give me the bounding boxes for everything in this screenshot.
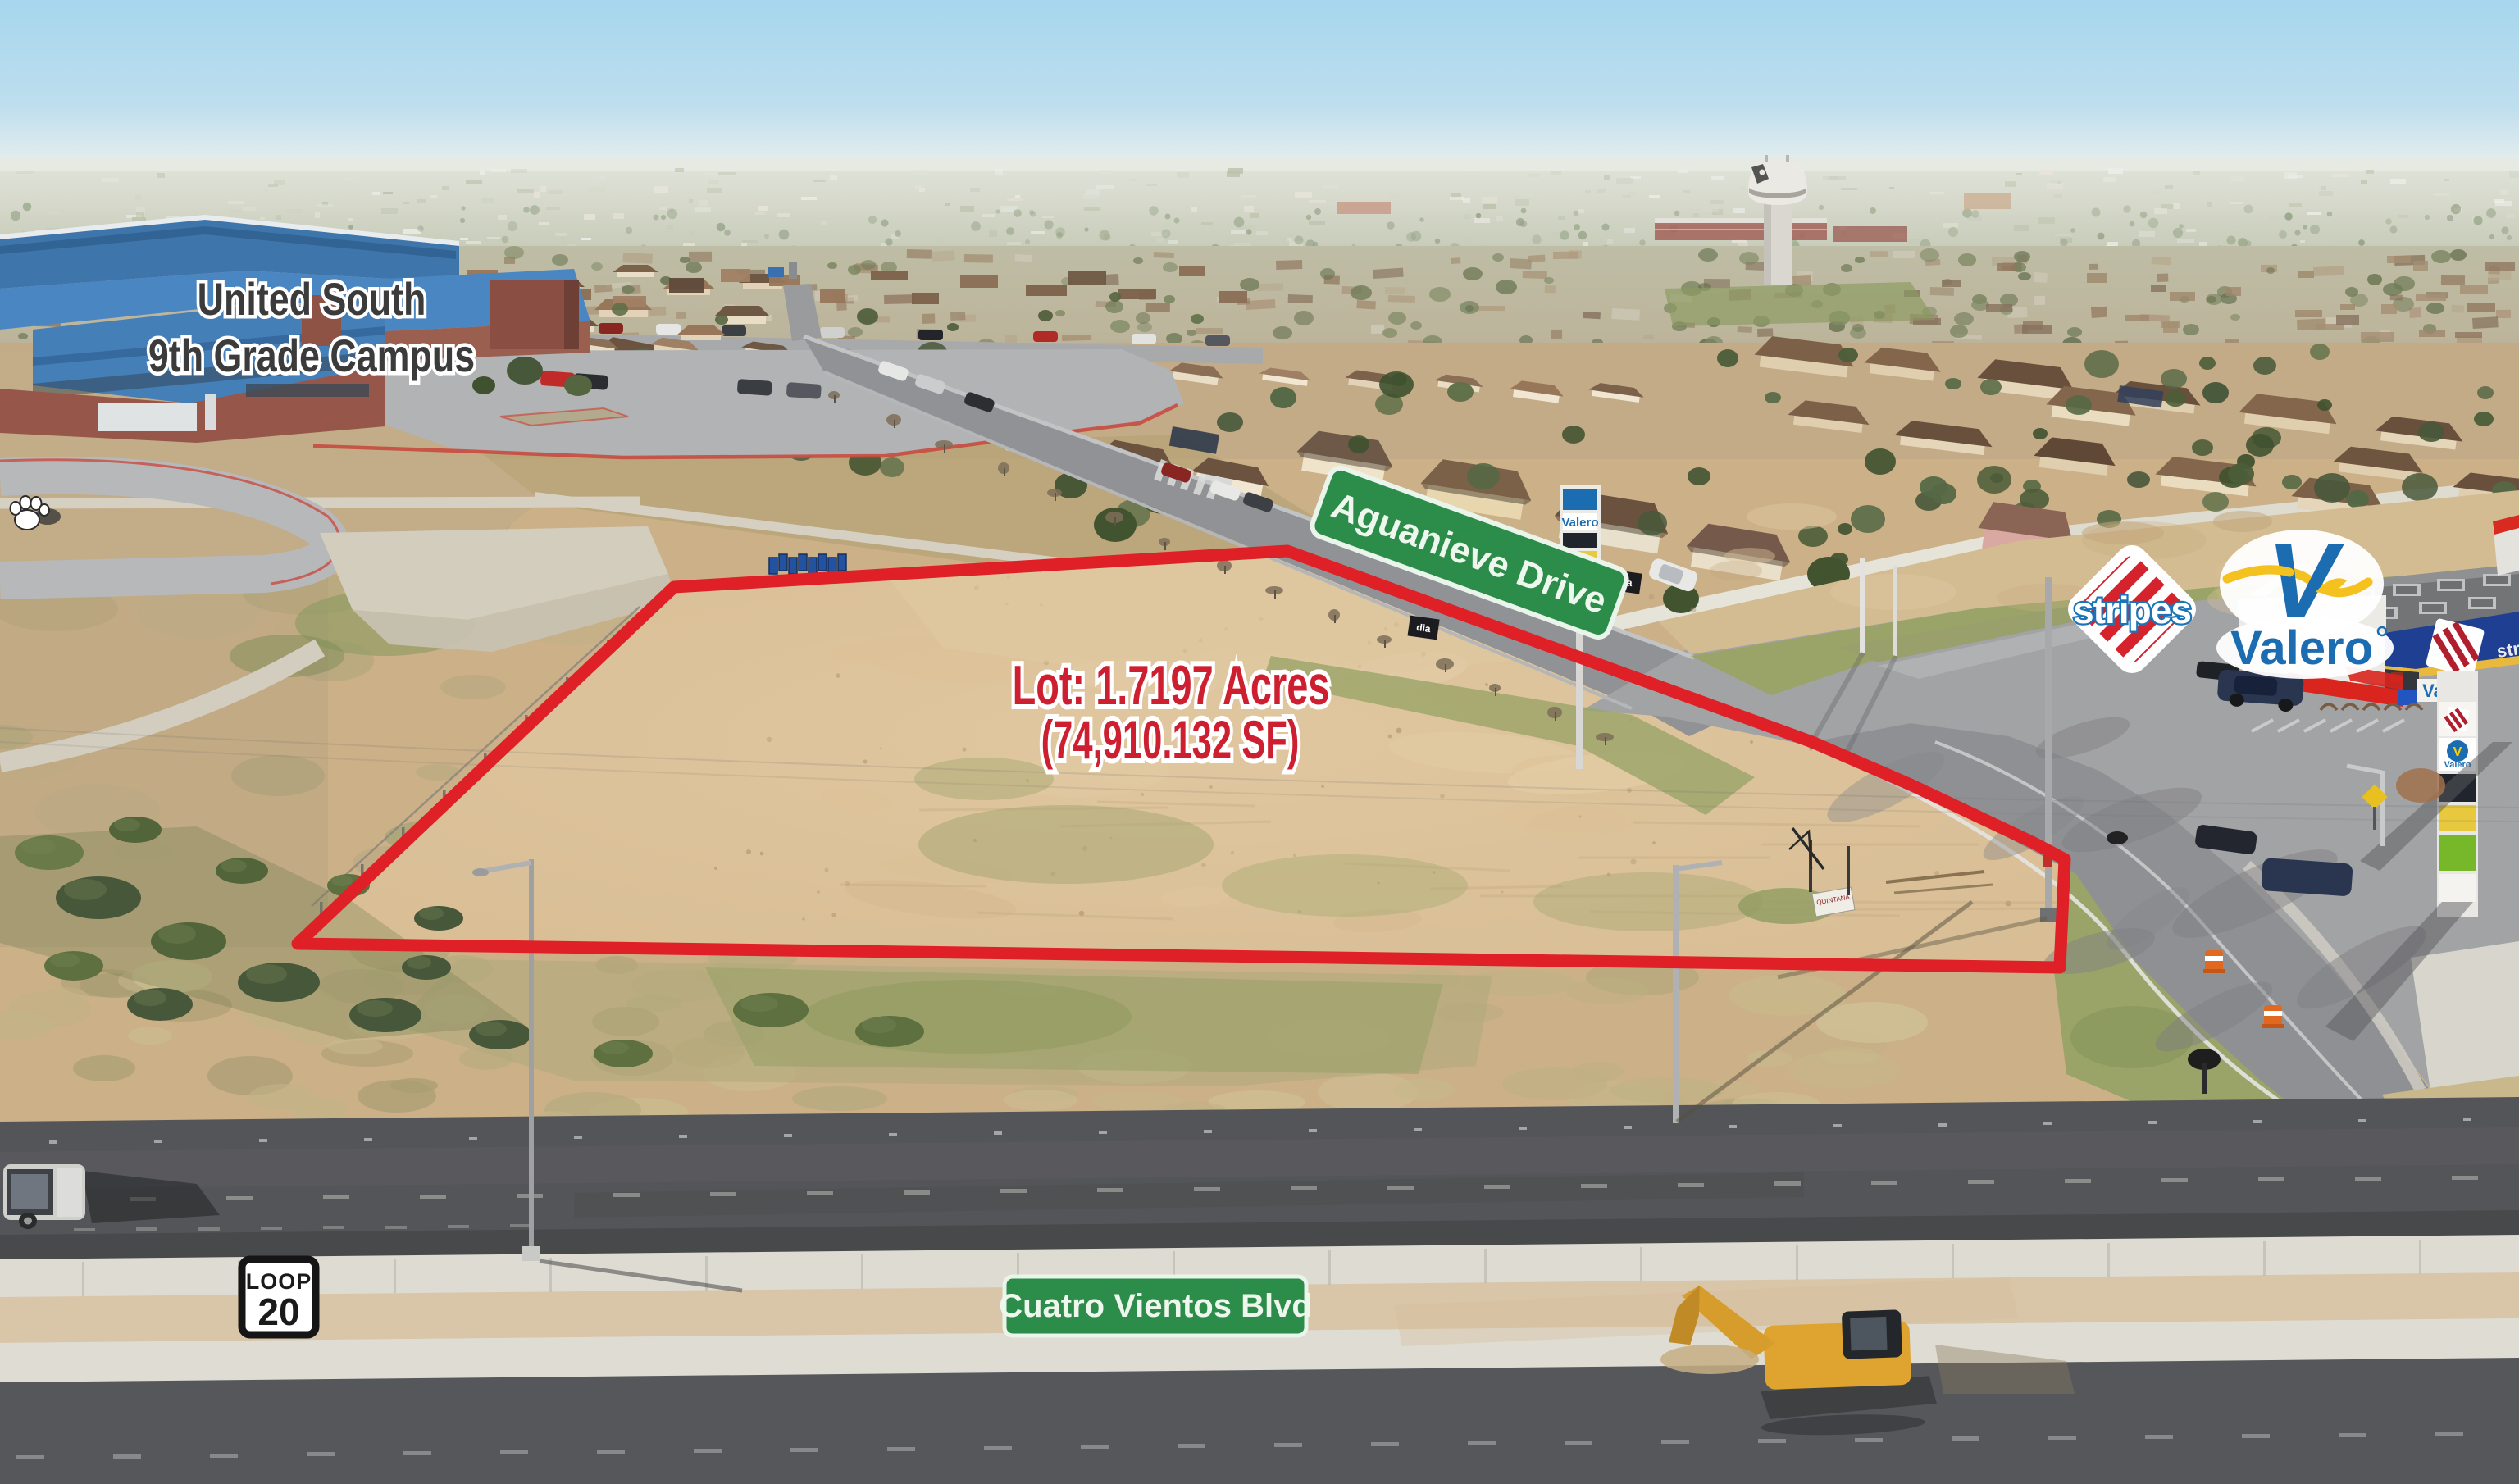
svg-text:9th Grade Campus: 9th Grade Campus [148, 330, 475, 381]
svg-text:dia: dia [1415, 621, 1431, 635]
svg-text:(74,910.132 SF): (74,910.132 SF) [1041, 709, 1300, 770]
svg-text:stripes: stripes [2073, 589, 2191, 631]
svg-text:Valero: Valero [2230, 621, 2373, 675]
svg-text:United South: United South [198, 273, 426, 325]
svg-text:Valero: Valero [1561, 516, 1598, 530]
svg-text:20: 20 [257, 1291, 299, 1333]
svg-text:Lot: 1.7197 Acres: Lot: 1.7197 Acres [1013, 654, 1330, 717]
svg-text:V: V [2453, 745, 2462, 759]
svg-text:Cuatro Vientos Blvd: Cuatro Vientos Blvd [999, 1288, 1312, 1324]
svg-text:str: str [2495, 638, 2519, 662]
